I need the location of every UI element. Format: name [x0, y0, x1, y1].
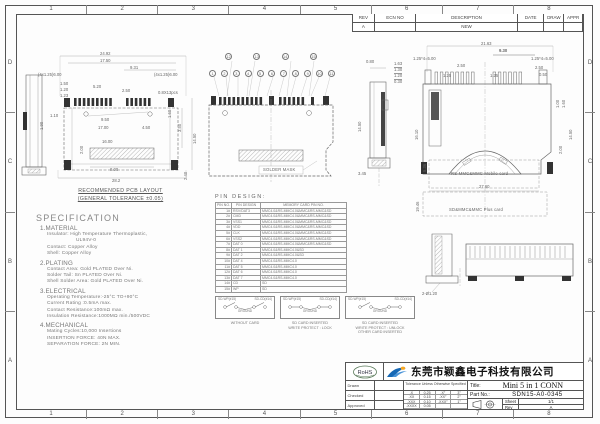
- rev-sub-row: Rev A: [503, 405, 583, 410]
- pin-design-table: PIN DESIGN: PIN NO. PIN DESIGN MEMORY CA…: [215, 194, 347, 293]
- zone-number: 4: [229, 5, 300, 14]
- spec-line: Shell Solder Area: Gold PLATED Over Ni.: [47, 279, 216, 285]
- dim-label: (4x1.25)6.00: [38, 73, 62, 78]
- appr-value: [564, 23, 583, 32]
- dim-label: 1.25*4=5.00: [413, 57, 436, 62]
- zone-number: 3: [158, 410, 229, 419]
- draw-value: [544, 23, 564, 32]
- ground-label: GROUND: [281, 310, 339, 313]
- spec-line: Insulation Resistance:1000MΩ min./500VDC: [47, 314, 216, 320]
- approved-value: [375, 401, 404, 410]
- ground-label: GROUND: [346, 310, 414, 313]
- pin-design-title: PIN DESIGN:: [215, 194, 347, 200]
- dim-label: 2.00: [80, 146, 85, 154]
- dim-label: 1.25: [490, 74, 498, 79]
- sd-cd-label: SD-CD(#14): [394, 298, 412, 301]
- sd-wp-label: SD-WP(#15): [218, 298, 236, 301]
- dim-label: 9.30: [499, 49, 507, 54]
- dim-label: 2.40: [184, 172, 189, 180]
- front-section-view-drawing: [418, 226, 578, 304]
- dim-label: 1.10: [50, 114, 58, 119]
- dim-label: 1.00: [556, 100, 561, 108]
- spec-title: SPECIFICATION: [36, 213, 216, 223]
- middle-side-view: 0.80 14.50 3.45 1.63 1.30 1.20 0.30: [356, 60, 408, 190]
- zone-letter: C: [5, 113, 15, 212]
- dim-label: 2.50: [457, 64, 465, 69]
- zone-number: 6: [372, 410, 443, 419]
- connector-top-view: 12131415 1234567891011 SOLDER MASK: [203, 50, 343, 192]
- sd-cd-label: SD-CD(#14): [319, 298, 337, 301]
- ground-label: GROUND: [216, 310, 274, 313]
- dim-label: 27.60: [479, 185, 489, 190]
- sheet-label: Sheet: [503, 399, 519, 404]
- dim-label: 1.50: [60, 82, 68, 87]
- specification-block: SPECIFICATION 1.MATERIAL Insulator: High…: [36, 213, 216, 349]
- title-block-brand-row: RoHS 东莞市颖鑫电子科技有限公司: [346, 363, 583, 381]
- rev-value: A: [519, 405, 583, 410]
- switch-diagram-sd-unlock: SD-WP(#15) SD-CD(#14) GROUND SD CARD INS…: [345, 296, 415, 335]
- zone-letter: A: [5, 312, 15, 410]
- spec-section: 2.PLATING: [40, 260, 216, 267]
- zone-letter: C: [585, 113, 595, 212]
- switch-box: SD-WP(#15) SD-CD(#14) GROUND: [280, 296, 340, 319]
- switch-box: SD-WP(#15) SD-CD(#14) GROUND: [215, 296, 275, 319]
- zone-letter: D: [5, 14, 15, 113]
- rohs-text: RoHS: [357, 370, 372, 376]
- title-part-column: Title: Mini 5 in 1 CONN Part No.: SDN15-…: [468, 381, 583, 410]
- dim-label: 1.25: [443, 74, 451, 79]
- drawing-sheet: { "sheet": { "zones_top": ["1","2","3","…: [0, 0, 600, 424]
- pin-balloon: 1: [209, 70, 216, 77]
- dim-label: 2.50: [122, 89, 130, 94]
- pin-balloon: 5: [257, 70, 264, 77]
- zone-numbers-bottom: 12345678: [16, 410, 584, 419]
- zone-number: 1: [16, 410, 87, 419]
- dim-label: 24.92: [100, 52, 110, 57]
- card2-label: SD&MMC&MMC Plus card: [449, 208, 503, 213]
- tolerance-row: .XXXX 0.05: [404, 404, 467, 409]
- spec-section: 1.MATERIAL: [40, 225, 216, 232]
- draw-col-header: DRAW: [544, 14, 564, 23]
- zone-number: 7: [443, 5, 514, 14]
- pin-table-row: 7# DAT 0 MMC4.0&RS-MMC4.0&MMC&RS-MMC&SD: [216, 242, 347, 248]
- zone-letter: A: [585, 312, 595, 410]
- revision-header-row: REV ECN NO DESCRIPTION DATE DRAW APPR: [352, 14, 583, 23]
- dim-label: 3.45: [358, 172, 366, 177]
- dim-label: 16.10: [415, 130, 420, 140]
- sheet-row: Sheet 1/1 Rev A: [468, 399, 583, 410]
- approved-label: Approved: [346, 401, 375, 410]
- dim-label: 19.46: [416, 202, 421, 212]
- rev-value: A: [353, 23, 375, 32]
- pcb-caption: RECOMMENDED PCB LAYOUT: [38, 188, 203, 194]
- rev-col-header: REV: [353, 14, 375, 23]
- date-value: [518, 23, 545, 32]
- checked-value: [375, 391, 404, 400]
- bottom-view-drawing: [413, 42, 578, 222]
- dim-label: 2.00: [559, 146, 564, 154]
- revision-data-row: A NEW: [352, 23, 583, 32]
- sd-wp-label: SD-WP(#15): [348, 298, 366, 301]
- dim-label: 1.23: [60, 94, 68, 99]
- pcb-layout-view: 24.92 17.50 9.31 (4x1.25)6.00 (4x1.25)6.…: [38, 52, 203, 207]
- brand-cell: 东莞市颖鑫电子科技有限公司: [384, 364, 583, 379]
- dim-label: 5.20: [93, 85, 101, 90]
- dim-label: 1.90: [40, 122, 45, 130]
- dim-label: (4x1.25)6.00: [154, 73, 178, 78]
- title-label: Title:: [468, 383, 483, 389]
- pin-balloon: 2: [221, 70, 228, 77]
- pin-balloon: 14: [282, 53, 289, 60]
- dim-label: 5.36: [423, 164, 428, 172]
- dim-label: 4.50: [142, 126, 150, 131]
- drawn-value: [375, 381, 404, 390]
- part-no-row: Part No.: SDN15-A0-0345: [468, 391, 583, 399]
- sd-wp-label: SD-WP(#15): [283, 298, 301, 301]
- switch-box: SD-WP(#15) SD-CD(#14) GROUND: [345, 296, 415, 319]
- dim-label: 8.00: [110, 168, 118, 173]
- description-value: NEW: [416, 23, 518, 32]
- part-no-label: Part No.:: [468, 392, 492, 398]
- zone-numbers-top: 12345678: [16, 5, 584, 14]
- signature-column: Drawn Checked Approved: [346, 381, 404, 410]
- dim-stack-value: 0.30: [394, 80, 402, 85]
- rohs-cell: RoHS: [346, 363, 384, 380]
- sd-cd-label: SD-CD(#14): [254, 298, 272, 301]
- card1-label: RS-MMC&MMC Mobile card: [451, 172, 508, 177]
- dim-label: 17.00: [98, 126, 108, 131]
- zone-letter: B: [5, 213, 15, 312]
- dim-label: 1.60: [562, 100, 567, 108]
- pin-table-row: 3# VSS1 MMC4.0&RS-MMC4.0&MMC&RS-MMC&SD: [216, 219, 347, 225]
- front-section-view: 2-Ø1.20: [418, 226, 578, 304]
- pin-table-row: 6# VSS2 MMC4.0&RS-MMC4.0&MMC&RS-MMC&SD: [216, 236, 347, 242]
- pin-balloons-bottom-row: 1234567891011: [209, 70, 335, 77]
- switch-caption: SD CARD INSERTED WRITE PROTECT : UNLOCK …: [345, 321, 415, 335]
- zone-number: 6: [372, 5, 443, 14]
- zone-letter: B: [585, 213, 595, 312]
- dim-label: 21.63: [481, 42, 491, 47]
- zone-number: 8: [514, 410, 584, 419]
- checked-row: Checked: [346, 391, 403, 401]
- dim-label: 17.50: [100, 59, 110, 64]
- pin-balloon: 6: [268, 70, 275, 77]
- tolerance-header: Tolerance Unless Otherwise Specified: [404, 381, 467, 391]
- spec-line: Shell: Copper Alloy: [47, 251, 216, 257]
- title-row: Title: Mini 5 in 1 CONN: [468, 381, 583, 391]
- switch-caption: SD CARD INSERTED WRITE PROTECT : LOCK: [280, 321, 340, 330]
- dim-label: 1.60: [168, 110, 173, 118]
- dim-label: 28.2: [112, 179, 120, 184]
- zone-number: 5: [301, 5, 372, 14]
- pin-balloon: 7: [280, 70, 287, 77]
- tolerance-rows: .X 0.25 .X° 3° .XX 0.15 .XX° 2° .XXX: [404, 391, 467, 409]
- pin-table: PIN NO. PIN DESIGN MEMORY CARD PIN NO. 1…: [215, 202, 347, 293]
- sheet-value: 1/1: [519, 399, 583, 404]
- rev-label: Rev: [503, 405, 519, 410]
- projection-cell: [468, 399, 503, 410]
- checked-label: Checked: [346, 391, 375, 400]
- spec-line: SEPARATION FORCE: 2N MIN.: [47, 342, 216, 348]
- third-angle-projection-icon: [471, 400, 499, 409]
- dim-label: 14.50: [193, 134, 198, 144]
- drawn-label: Drawn: [346, 381, 375, 390]
- title-block-main-row: Drawn Checked Approved Tolerance Unless …: [346, 381, 583, 410]
- pin-table-row: 5# CLK MMC4.0&RS-MMC4.0&MMC&RS-MMC&SD: [216, 230, 347, 236]
- pin-balloon: 9: [304, 70, 311, 77]
- pin-balloon: 8: [292, 70, 299, 77]
- rohs-icon: RoHS: [352, 365, 378, 379]
- company-logo-icon: [386, 365, 408, 379]
- zone-number: 2: [87, 410, 158, 419]
- dim-label: 14.50: [569, 130, 574, 140]
- zone-letter: D: [585, 14, 595, 113]
- pin-table-row: 1# RSV/DAT3 MMC4.0&RS-MMC4.0&MMC&RS-MMC&…: [216, 208, 347, 214]
- pin-table-body: 1# RSV/DAT3 MMC4.0&RS-MMC4.0&MMC&RS-MMC&…: [216, 208, 347, 292]
- ecn-value: [375, 23, 416, 32]
- date-col-header: DATE: [518, 14, 545, 23]
- pin-table-row: 4# VDD MMC4.0&RS-MMC4.0&MMC&RS-MMC&SD: [216, 225, 347, 231]
- dim-label: 1.25*4=5.00: [531, 57, 554, 62]
- approved-row: Approved: [346, 401, 403, 410]
- pin-balloon: 4: [245, 70, 252, 77]
- zone-number: 7: [443, 410, 514, 419]
- zone-number: 1: [16, 5, 87, 14]
- dim-label: 1.20: [60, 88, 68, 93]
- dim-label: 9.50: [101, 118, 109, 123]
- appr-col-header: APPR: [564, 14, 583, 23]
- sheet-cell: Sheet 1/1 Rev A: [503, 399, 583, 410]
- pin-table-row: 15# WP SD: [216, 286, 347, 292]
- zone-letters-left: DCBA: [5, 14, 15, 410]
- pin-design-cell: WP: [232, 286, 261, 292]
- dim-label: 16.00: [102, 140, 112, 145]
- pin-balloon: 15: [310, 53, 317, 60]
- zone-number: 2: [87, 5, 158, 14]
- company-name: 东莞市颖鑫电子科技有限公司: [411, 364, 554, 379]
- switch-diagram-sd-lock: SD-WP(#15) SD-CD(#14) GROUND SD CARD INS…: [280, 296, 340, 330]
- dim-label: 14.50: [358, 122, 363, 132]
- dim-label: 0.50: [539, 73, 547, 78]
- pin-no-cell: 15#: [216, 286, 232, 292]
- zone-number: 5: [301, 410, 372, 419]
- dim-label: 0.80: [366, 60, 374, 65]
- zone-letters-right: DCBA: [585, 14, 595, 410]
- zone-number: 3: [158, 5, 229, 14]
- spec-section: 3.ELECTRICAL: [40, 288, 216, 295]
- pin-balloon: 3: [233, 70, 240, 77]
- pin-balloon: 12: [225, 53, 232, 60]
- memory-card-cell: SD: [261, 286, 347, 292]
- switch-diagram-without-card: SD-WP(#15) SD-CD(#14) GROUND WITHOUT CAR…: [215, 296, 275, 326]
- pin-table-row: 2# CMD MMC4.0&RS-MMC4.0&MMC&RS-MMC&SD: [216, 214, 347, 220]
- dim-label: 2.50: [535, 66, 543, 71]
- title-block: RoHS 东莞市颖鑫电子科技有限公司 Drawn Checked Approve…: [345, 362, 583, 409]
- dim-label: 3.50: [178, 124, 183, 132]
- description-col-header: DESCRIPTION: [416, 14, 518, 23]
- pin-balloon: 10: [316, 70, 323, 77]
- pin-no-header: PIN NO.: [216, 203, 232, 209]
- switch-caption: WITHOUT CARD: [215, 321, 275, 326]
- bottom-view-with-cards: 21.63 9.30 1.25*4=5.00 1.25*4=5.00 2.50 …: [413, 42, 578, 222]
- tolerance-table: Tolerance Unless Otherwise Specified .X …: [404, 381, 468, 410]
- pcb-tolerance-caption: (GENERAL TOLERANCE ±0.05): [38, 196, 203, 202]
- dim-label: 2-Ø1.20: [422, 292, 437, 297]
- revision-table: REV ECN NO DESCRIPTION DATE DRAW APPR A …: [352, 14, 583, 32]
- part-no-value: SDN15-A0-0345: [492, 392, 583, 398]
- drawing-title: Mini 5 in 1 CONN: [483, 381, 583, 390]
- solder-mask-label: SOLDER MASK: [263, 168, 295, 173]
- pin-balloon: 11: [328, 70, 335, 77]
- zone-number: 4: [229, 410, 300, 419]
- drawn-row: Drawn: [346, 381, 403, 391]
- pin-balloons-top-row: 12131415: [225, 53, 317, 60]
- zone-number: 8: [514, 5, 584, 14]
- dim-label: 0.8X13pcs: [158, 91, 178, 96]
- ecn-col-header: ECN NO: [375, 14, 416, 23]
- dim-label: 9.31: [130, 66, 138, 71]
- pin-balloon: 13: [253, 53, 260, 60]
